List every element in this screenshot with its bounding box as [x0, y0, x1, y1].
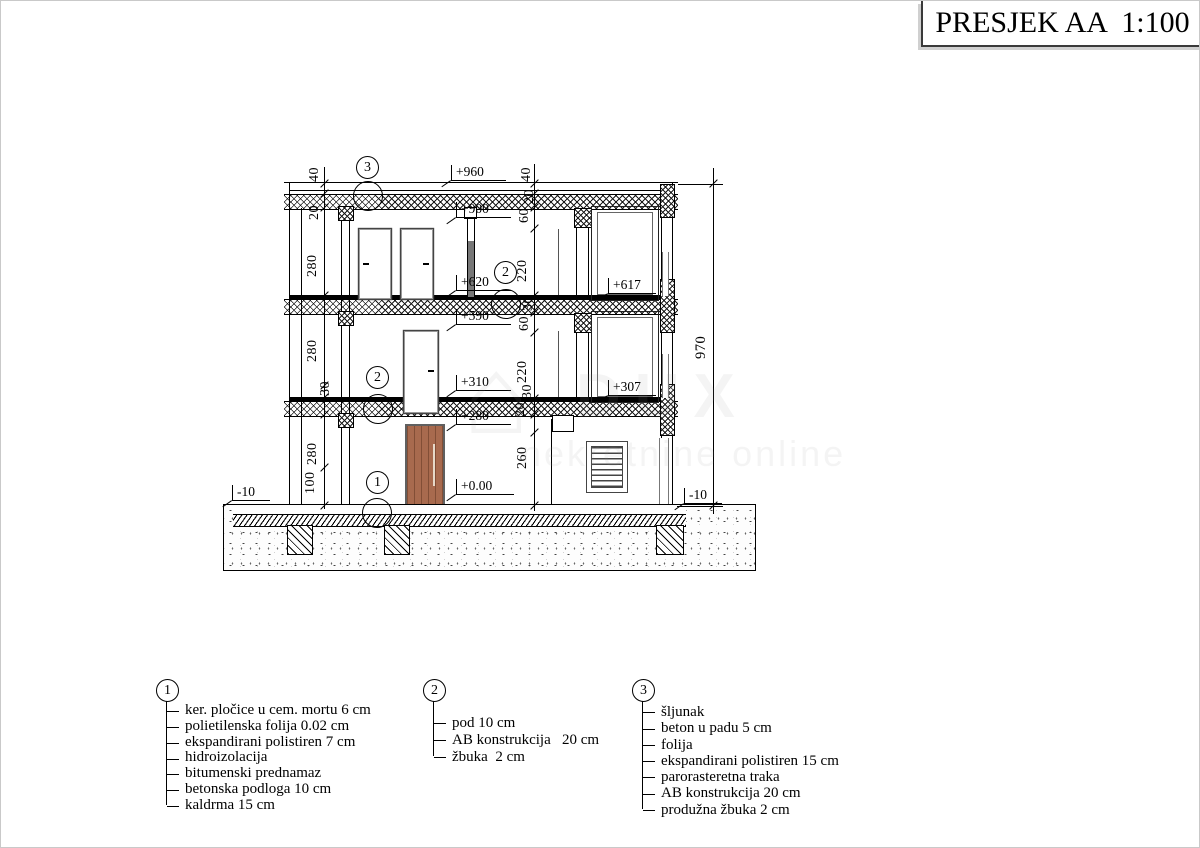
legend-item: ekspandirani polistiren 15 cm: [661, 753, 839, 769]
elevation-label: +620: [456, 275, 489, 290]
elevation-label: +617: [608, 278, 641, 293]
footing-hatch: [656, 525, 684, 555]
elevation-marker: -10: [684, 488, 722, 504]
elevation-marker: +0.00: [456, 479, 514, 495]
elevation-marker: -10: [232, 485, 270, 501]
legend-item: AB konstrukcija 20 cm: [452, 732, 599, 749]
elevation-flag-icon: [446, 424, 456, 431]
dim-label: 60: [517, 312, 533, 336]
elevation-line: [608, 293, 656, 294]
footing-hatch: [384, 525, 410, 555]
roof-screed-line: [289, 190, 673, 191]
legend-item: betonska podloga 10 cm: [185, 782, 371, 798]
callout-number: 3: [364, 160, 371, 176]
dim-label: 40: [519, 163, 535, 187]
dim-label: 100: [303, 469, 319, 497]
legend-item: hidroizolacija: [185, 750, 371, 766]
elevation-flag-icon: [446, 324, 456, 331]
window-glazing: [662, 252, 669, 296]
callout-detail-circle: [362, 498, 392, 528]
dim-chain-line-left: [324, 167, 325, 509]
dim-label: 280: [305, 252, 321, 280]
house-watermark-icon: ⌂: [463, 346, 529, 446]
drawing-sheet: ⌂ DUX nekretnine online PRESJEK AA 1:100: [0, 0, 1200, 848]
legend-item: AB konstrukcija 20 cm: [661, 785, 839, 801]
partition-edge-line: [558, 331, 559, 397]
legend-number: 2: [431, 683, 438, 699]
door-handle-icon: [433, 444, 435, 486]
callout-detail-circle: [491, 289, 521, 319]
legend-item: parorasteretna traka: [661, 769, 839, 785]
elevation-line: [232, 500, 270, 501]
dim-label: 280: [305, 440, 321, 468]
legend-bracket-line: [433, 700, 434, 756]
callout-detail-circle: [353, 181, 383, 211]
elevation-marker: +617: [608, 278, 656, 294]
legend-number-circle: 1: [156, 679, 179, 702]
legend-item: pod 10 cm: [452, 715, 599, 732]
elevation-marker: +960: [451, 165, 506, 181]
legend-number-circle: 3: [632, 679, 655, 702]
wood-entry-door: [405, 424, 445, 510]
elevation-label: -10: [232, 485, 255, 500]
callout-circle: 3: [356, 156, 379, 179]
legend-number: 3: [640, 683, 647, 699]
callout-number: 1: [374, 475, 381, 491]
dim-label: 280: [305, 337, 321, 365]
elevation-line: [456, 217, 511, 218]
elevation-flag-icon: [446, 494, 456, 501]
wall-junction-hatch: [338, 311, 354, 326]
legend-item: polietilenska folija 0.02 cm: [185, 719, 371, 735]
dim-label: 60: [517, 204, 533, 228]
callout-circle: 1: [366, 471, 389, 494]
legend-item: ekspandirani polistiren 7 cm: [185, 735, 371, 751]
door-handle-icon: [428, 370, 434, 372]
wall-junction-hatch: [338, 206, 354, 221]
dim-leader: [678, 184, 723, 185]
legend-item: produžna žbuka 2 cm: [661, 802, 839, 818]
watermark-subtext: nekretnine online: [521, 433, 846, 475]
interior-wall-line: [349, 208, 350, 506]
elevation-flag-icon: [446, 217, 456, 224]
left-wall-inner-line: [301, 208, 302, 506]
wall-junction-hatch: [338, 413, 354, 428]
callout-number: 2: [374, 370, 381, 386]
partition-edge-line: [558, 229, 559, 295]
elevation-line: [456, 324, 511, 325]
door-handle-icon: [423, 263, 429, 265]
beam-box: [552, 415, 574, 432]
legend-item: ker. pločice u cem. mortu 6 cm: [185, 703, 371, 719]
legend-item: šljunak: [661, 704, 839, 720]
elevation-label: +900: [456, 202, 489, 217]
legend-number: 1: [164, 683, 171, 699]
legend-items: šljunak beton u padu 5 cm folija ekspand…: [661, 704, 839, 818]
drawing-title: PRESJEK AA 1:100: [935, 6, 1189, 40]
legend-item: beton u padu 5 cm: [661, 720, 839, 736]
door-elevation: [401, 229, 433, 299]
footing-hatch: [287, 525, 313, 555]
elevation-line: [684, 503, 722, 504]
lintel-hatch: [574, 208, 592, 228]
watermark-brand: DUX: [576, 361, 749, 432]
door-handle-icon: [363, 263, 369, 265]
title-block: PRESJEK AA 1:100: [921, 1, 1200, 47]
door-elevation: [359, 229, 391, 299]
legend-items: pod 10 cm AB konstrukcija 20 cm žbuka 2 …: [452, 715, 599, 766]
callout-detail-circle: [363, 394, 393, 424]
dim-label: 220: [515, 257, 531, 285]
legend-item: kaldrma 15 cm: [185, 798, 371, 814]
elevation-label: -10: [684, 488, 707, 503]
callout-circle: 2: [494, 261, 517, 284]
legend-item: žbuka 2 cm: [452, 749, 599, 766]
dim-label: 20: [307, 201, 323, 225]
elevation-label: +590: [456, 309, 489, 324]
interior-wall-line: [341, 208, 342, 506]
door-elevation: [404, 331, 438, 413]
dim-label: 40: [307, 163, 323, 187]
legend-item: bitumenski prednamaz: [185, 766, 371, 782]
elevation-line: [456, 494, 514, 495]
elevation-label: +0.00: [456, 479, 492, 494]
left-wall-outer-line: [289, 182, 290, 506]
lintel-hatch: [574, 313, 592, 333]
elevation-label: +960: [451, 165, 484, 180]
elevation-marker: +900: [456, 202, 511, 218]
dim-leader: [677, 506, 723, 507]
callout-number: 2: [502, 265, 509, 281]
right-wall-pier-hatch: [660, 184, 675, 218]
legend-item: folija: [661, 737, 839, 753]
elevation-line: [451, 180, 506, 181]
callout-circle: 2: [366, 366, 389, 389]
legend-items: ker. pločice u cem. mortu 6 cm polietile…: [185, 703, 371, 814]
legend-number-circle: 2: [423, 679, 446, 702]
legend-bracket-line: [642, 700, 643, 809]
dim-label: 30: [318, 378, 334, 400]
parapet-top-line: [284, 182, 678, 183]
